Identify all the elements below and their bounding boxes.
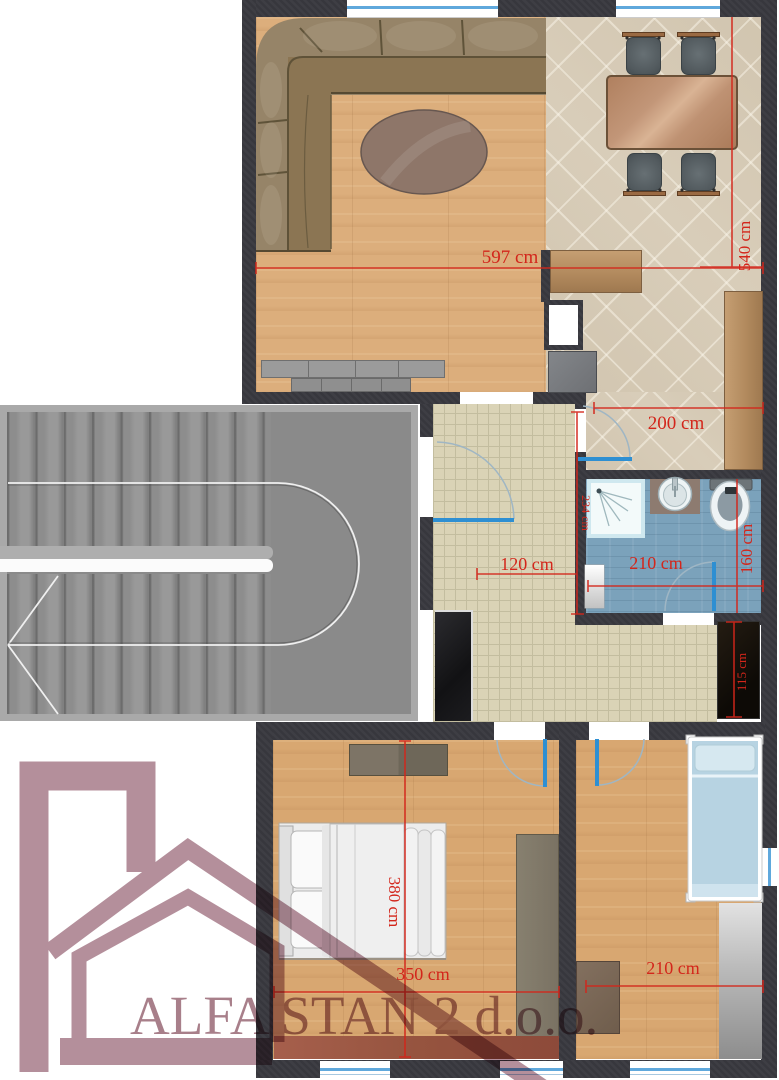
svg-text:ALFA STAN 2 d.o.o.: ALFA STAN 2 d.o.o.	[130, 985, 598, 1046]
